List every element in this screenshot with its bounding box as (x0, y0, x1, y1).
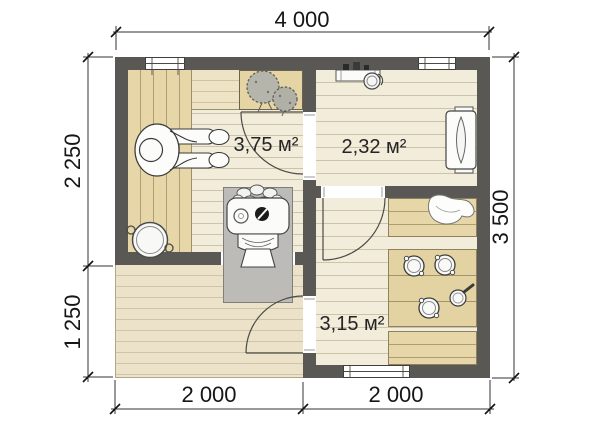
window-top-right (418, 57, 456, 70)
wall-left (115, 57, 128, 265)
dimension-right: 3 500 (487, 157, 515, 277)
sauna-side-bench (128, 70, 192, 252)
window-top-left (145, 57, 185, 70)
planter-box (239, 70, 303, 110)
wall-middle-center (303, 180, 316, 298)
rest-room-area-label: 2,32 м² (324, 136, 424, 159)
washroom-area-label: 3,15 м² (302, 313, 402, 336)
stove-hearth-pad (223, 187, 293, 303)
rest-room-floor (316, 70, 477, 186)
wall-rest-wash-right (385, 186, 477, 198)
wall-sauna-bottom-left (115, 252, 221, 265)
rest-wash-door-opening (321, 186, 385, 198)
washroom-top-bench (388, 198, 477, 237)
dimension-bottom-left: 2 000 (159, 382, 259, 408)
floor-plan: 4 000 3 500 2 250 1 250 2 000 2 000 3,75… (0, 0, 600, 424)
dimension-top: 4 000 (252, 7, 352, 33)
window-bottom (343, 365, 410, 378)
dimension-left-lower: 1 250 (59, 262, 87, 382)
wall-middle-upper (303, 57, 316, 112)
sauna-area-label: 3,75 м² (216, 134, 316, 157)
dimension-left-upper: 2 250 (59, 101, 87, 221)
washroom-bottom-bench (388, 331, 477, 365)
wall-middle-lower (303, 353, 316, 378)
dimension-bottom-right: 2 000 (346, 382, 446, 408)
